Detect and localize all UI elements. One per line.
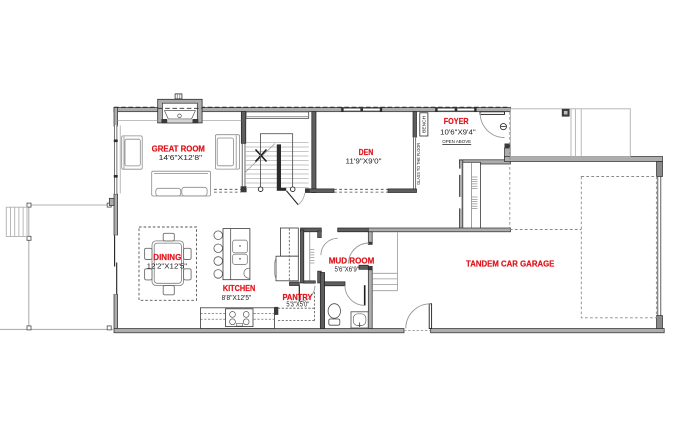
svg-text:8'8"X12'5": 8'8"X12'5" [222, 295, 252, 302]
svg-text:14'6"X12'8": 14'6"X12'8" [159, 155, 203, 162]
svg-text:11'9"X9'0": 11'9"X9'0" [346, 158, 383, 165]
svg-text:10'6"X9'4": 10'6"X9'4" [440, 130, 476, 137]
svg-text:DEN: DEN [359, 147, 374, 157]
svg-text:DINING: DINING [153, 252, 181, 262]
svg-text:TANDEM CAR GARAGE: TANDEM CAR GARAGE [466, 259, 555, 269]
svg-text:5'3"X5'0": 5'3"X5'0" [286, 301, 309, 308]
svg-text:GLASS TO THE FLOOR: GLASS TO THE FLOOR [416, 142, 422, 184]
svg-text:12'2"X12'5": 12'2"X12'5" [147, 263, 188, 270]
svg-text:KITCHEN: KITCHEN [223, 283, 255, 293]
svg-text:5'6"X6'9": 5'6"X6'9" [334, 267, 359, 274]
svg-text:FOYER: FOYER [444, 116, 469, 126]
svg-text:GREAT ROOM: GREAT ROOM [152, 143, 205, 153]
svg-text:BENCH: BENCH [422, 115, 428, 133]
svg-text:MUD ROOM: MUD ROOM [329, 255, 375, 265]
